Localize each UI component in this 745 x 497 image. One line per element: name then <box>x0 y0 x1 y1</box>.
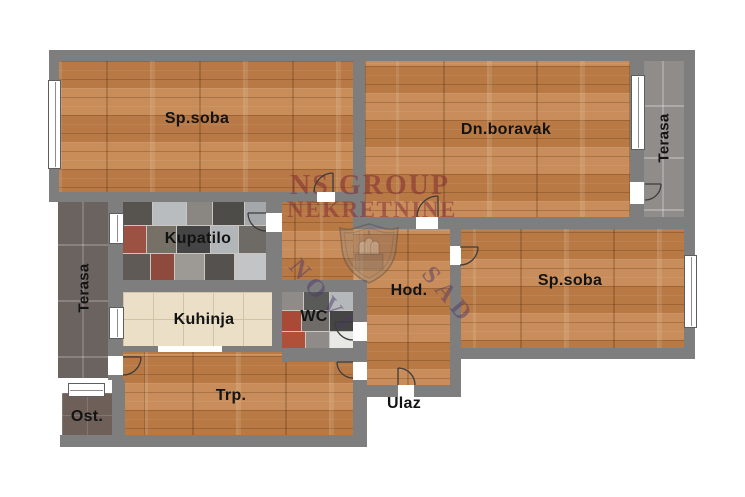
door-opening <box>416 217 438 229</box>
room-label-sp-soba-1: Sp.soba <box>165 110 229 128</box>
tile <box>205 254 234 280</box>
room-label-sp-soba-2: Sp.soba <box>538 272 602 290</box>
room-label-ostava: Ost. <box>71 408 103 426</box>
wall <box>49 50 693 61</box>
room-label-trpezarija: Trp. <box>216 387 247 405</box>
door-opening <box>317 192 335 202</box>
room-label-hodnik: Hod. <box>391 282 428 300</box>
tile <box>123 254 150 280</box>
room-label-terasa-right: Terasa <box>656 113 673 162</box>
window-symbol <box>48 80 61 169</box>
wall <box>222 346 272 352</box>
room-label-kupatilo: Kupatilo <box>165 230 231 248</box>
tile <box>235 254 266 280</box>
window-symbol <box>631 75 645 150</box>
tile <box>245 202 266 225</box>
room-label-wc: WC <box>300 308 327 326</box>
window-symbol <box>68 383 105 397</box>
window-symbol <box>684 255 697 328</box>
door-opening <box>353 362 367 380</box>
door-opening <box>108 356 123 375</box>
room-label-dn-boravak: Dn.boravak <box>461 121 551 139</box>
tile <box>239 226 266 253</box>
door-opening <box>630 182 644 204</box>
wall <box>60 435 367 447</box>
tile <box>151 254 174 280</box>
door-opening <box>353 322 367 341</box>
wall <box>272 285 282 352</box>
wall <box>112 380 125 441</box>
room-label-kuhinja: Kuhinja <box>174 311 235 329</box>
shield-logo-icon <box>336 221 402 285</box>
tile <box>213 202 244 225</box>
tile <box>175 254 204 280</box>
door-opening <box>450 246 461 265</box>
tile <box>282 311 301 331</box>
window-symbol <box>109 213 124 244</box>
room-label-terasa-left: Terasa <box>76 263 93 312</box>
floor-plan: NS GROUP NEKRETNINE NOVI SAD <box>0 0 745 497</box>
tile <box>282 332 305 348</box>
tile <box>123 202 152 225</box>
wall <box>115 346 158 352</box>
tile <box>306 332 329 348</box>
door-opening <box>266 213 282 232</box>
room-label-ulaz: Ulaz <box>387 395 421 413</box>
window-symbol <box>109 307 124 339</box>
tile <box>123 226 146 253</box>
tile <box>153 202 186 225</box>
tile <box>187 202 212 225</box>
wall <box>450 348 695 359</box>
